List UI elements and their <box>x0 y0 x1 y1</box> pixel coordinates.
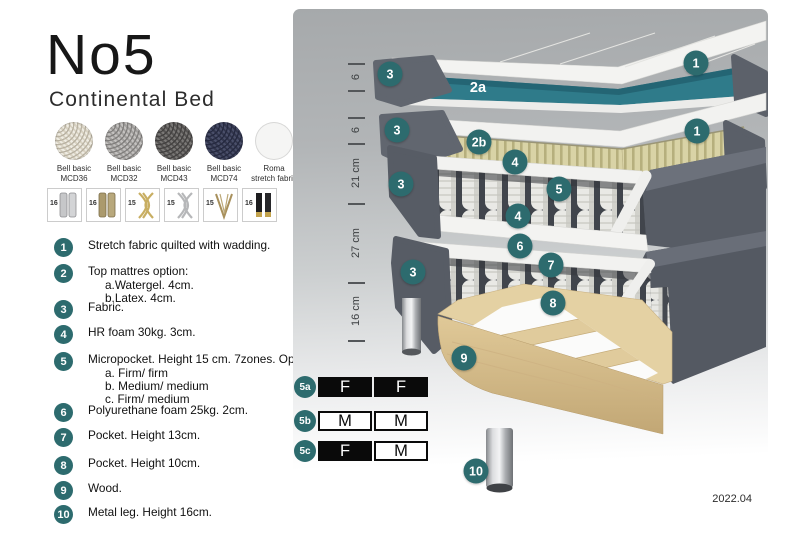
part-number-badge: 1 <box>54 238 73 257</box>
leg-option-hairpin-gold: 15 <box>203 188 238 222</box>
callout-badge-10: 10 <box>464 459 489 484</box>
firmness-cell: M <box>318 411 372 431</box>
metal-leg-front <box>486 428 513 488</box>
leg-option-cylinder-brass: 16 <box>86 188 121 222</box>
ruler-measurement-label: 21 cm <box>350 143 362 203</box>
callout-badge-1: 1 <box>685 119 710 144</box>
fabric-swatch-image <box>105 122 143 160</box>
firmness-row-badge-5a: 5a <box>294 376 316 398</box>
part-number-badge: 6 <box>54 403 73 422</box>
callout-badge-8: 8 <box>541 291 566 316</box>
version-label: 2022.04 <box>712 493 752 505</box>
part-description: Wood. <box>88 482 122 495</box>
callout-badge-5: 5 <box>547 177 572 202</box>
callout-badge-6: 6 <box>508 234 533 259</box>
callout-badge-2a: 2a <box>470 80 486 96</box>
fabric-swatch-mcd36: Bell basicMCD36 <box>49 122 99 183</box>
metal-leg-back <box>402 298 421 352</box>
firmness-cell: M <box>374 441 428 461</box>
wood-base <box>402 284 673 493</box>
part-sub-option: a.Watergel. 4cm. <box>88 279 194 291</box>
fabric-swatch-label: Bell basicMCD32 <box>99 164 149 183</box>
part-number-badge: 2 <box>54 264 73 283</box>
part-number-badge: 5 <box>54 352 73 371</box>
part-number-badge: 8 <box>54 456 73 475</box>
fabric-swatch-stretch-fabric: Romastretch fabric <box>249 122 299 183</box>
fabric-swatch-image <box>155 122 193 160</box>
fabric-swatch-label: Bell basicMCD43 <box>149 164 199 183</box>
part-description: Polyurethane foam 25kg. 2cm. <box>88 404 248 417</box>
leg-option-cylinder-black-gold: 16 <box>242 188 277 222</box>
firmness-row-badge-5c: 5c <box>294 440 316 462</box>
product-sheet: No5 Continental Bed Bell basicMCD36Bell … <box>0 0 800 533</box>
leg-option-cylinder-silver: 16 <box>47 188 82 222</box>
part-description: Pocket. Height 13cm. <box>88 429 200 442</box>
callout-badge-1: 1 <box>684 51 709 76</box>
part-description: Fabric. <box>88 301 124 314</box>
callout-badge-7: 7 <box>539 253 564 278</box>
fabric-swatch-image <box>255 122 293 160</box>
ruler-measurement-label: 6 <box>350 47 362 107</box>
part-description: Metal leg. Height 16cm. <box>88 506 212 519</box>
part-sub-option: b. Medium/ medium <box>88 380 317 392</box>
callout-badge-3: 3 <box>389 172 414 197</box>
callout-badge-3: 3 <box>385 118 410 143</box>
part-description: HR foam 30kg. 3cm. <box>88 326 196 339</box>
fabric-swatch-mcd43: Bell basicMCD43 <box>149 122 199 183</box>
illustration-panel: 6621 cm27 cm16 cm 312a312b43546738910 5a… <box>293 9 768 523</box>
part-description: Micropocket. Height 15 cm. 7zones. Optio… <box>88 353 317 406</box>
firmness-row-5b: MM <box>318 411 428 431</box>
fabric-swatch-label: Bell basicMCD36 <box>49 164 99 183</box>
callout-badge-2b: 2b <box>467 130 492 155</box>
fabric-swatch-label: Romastretch fabric <box>249 164 299 183</box>
ruler-tick <box>348 203 365 205</box>
firmness-cell: F <box>318 441 372 461</box>
part-description: Top mattres option:a.Watergel. 4cm.b.Lat… <box>88 265 194 304</box>
leg-option-cross-gold: 15 <box>125 188 160 222</box>
fabric-swatch-mcd74: Bell basicMCD74 <box>199 122 249 183</box>
firmness-row-5a: FF <box>318 377 428 397</box>
fabric-swatch-image <box>55 122 93 160</box>
product-subtitle: Continental Bed <box>49 88 215 112</box>
ruler-measurement-label: 16 cm <box>350 281 362 341</box>
part-number-badge: 3 <box>54 300 73 319</box>
ruler-measurement-label: 27 cm <box>350 213 362 273</box>
firmness-cell: F <box>374 377 428 397</box>
part-sub-option: a. Firm/ firm <box>88 367 317 379</box>
fabric-swatch-mcd32: Bell basicMCD32 <box>99 122 149 183</box>
product-title: No5 <box>46 22 157 88</box>
firmness-cell: M <box>374 411 428 431</box>
part-number-badge: 4 <box>54 325 73 344</box>
callout-badge-9: 9 <box>452 346 477 371</box>
part-number-badge: 7 <box>54 428 73 447</box>
part-description: Stretch fabric quilted with wadding. <box>88 239 270 252</box>
callout-badge-3: 3 <box>401 260 426 285</box>
firmness-cell: F <box>318 377 372 397</box>
part-number-badge: 9 <box>54 481 73 500</box>
callout-badge-4: 4 <box>506 204 531 229</box>
firmness-row-5c: FM <box>318 441 428 461</box>
fabric-swatch-label: Bell basicMCD74 <box>199 164 249 183</box>
fabric-swatch-image <box>205 122 243 160</box>
leg-option-cross-silver: 15 <box>164 188 199 222</box>
part-description: Pocket. Height 10cm. <box>88 457 200 470</box>
part-number-badge: 10 <box>54 505 73 524</box>
firmness-row-badge-5b: 5b <box>294 410 316 432</box>
callout-badge-4: 4 <box>503 150 528 175</box>
callout-badge-3: 3 <box>378 62 403 87</box>
